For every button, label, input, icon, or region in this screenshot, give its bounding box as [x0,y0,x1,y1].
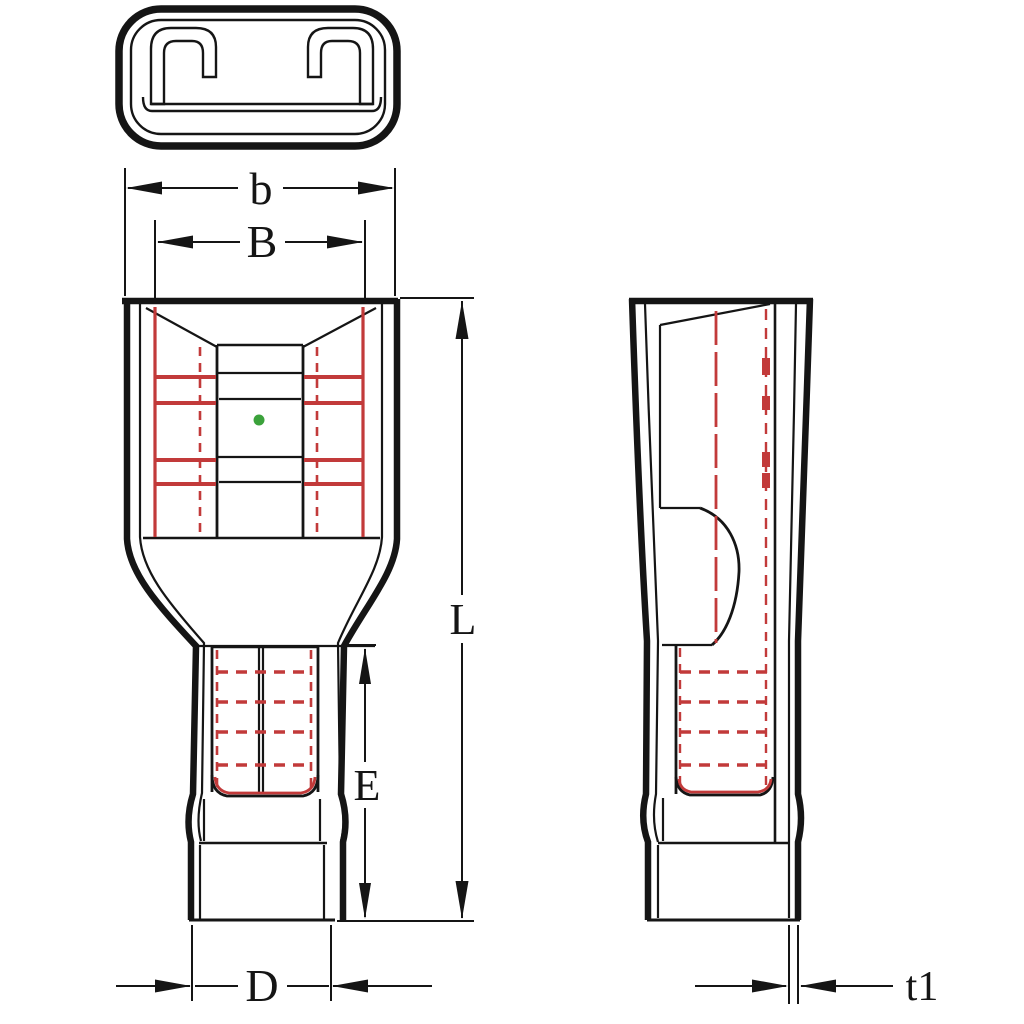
dimension-D-label: D [245,960,278,1011]
technical-drawing-page: b B [0,0,1024,1024]
dimension-E-label: E [354,761,381,810]
green-indicator-dot [254,415,265,426]
dimension-B-label: B [247,216,278,267]
dimension-L-label: L [450,595,477,644]
dimension-t1-label: t1 [906,964,939,1010]
dimension-b-label: b [250,163,273,214]
drawing-canvas: b B [0,0,1024,1024]
